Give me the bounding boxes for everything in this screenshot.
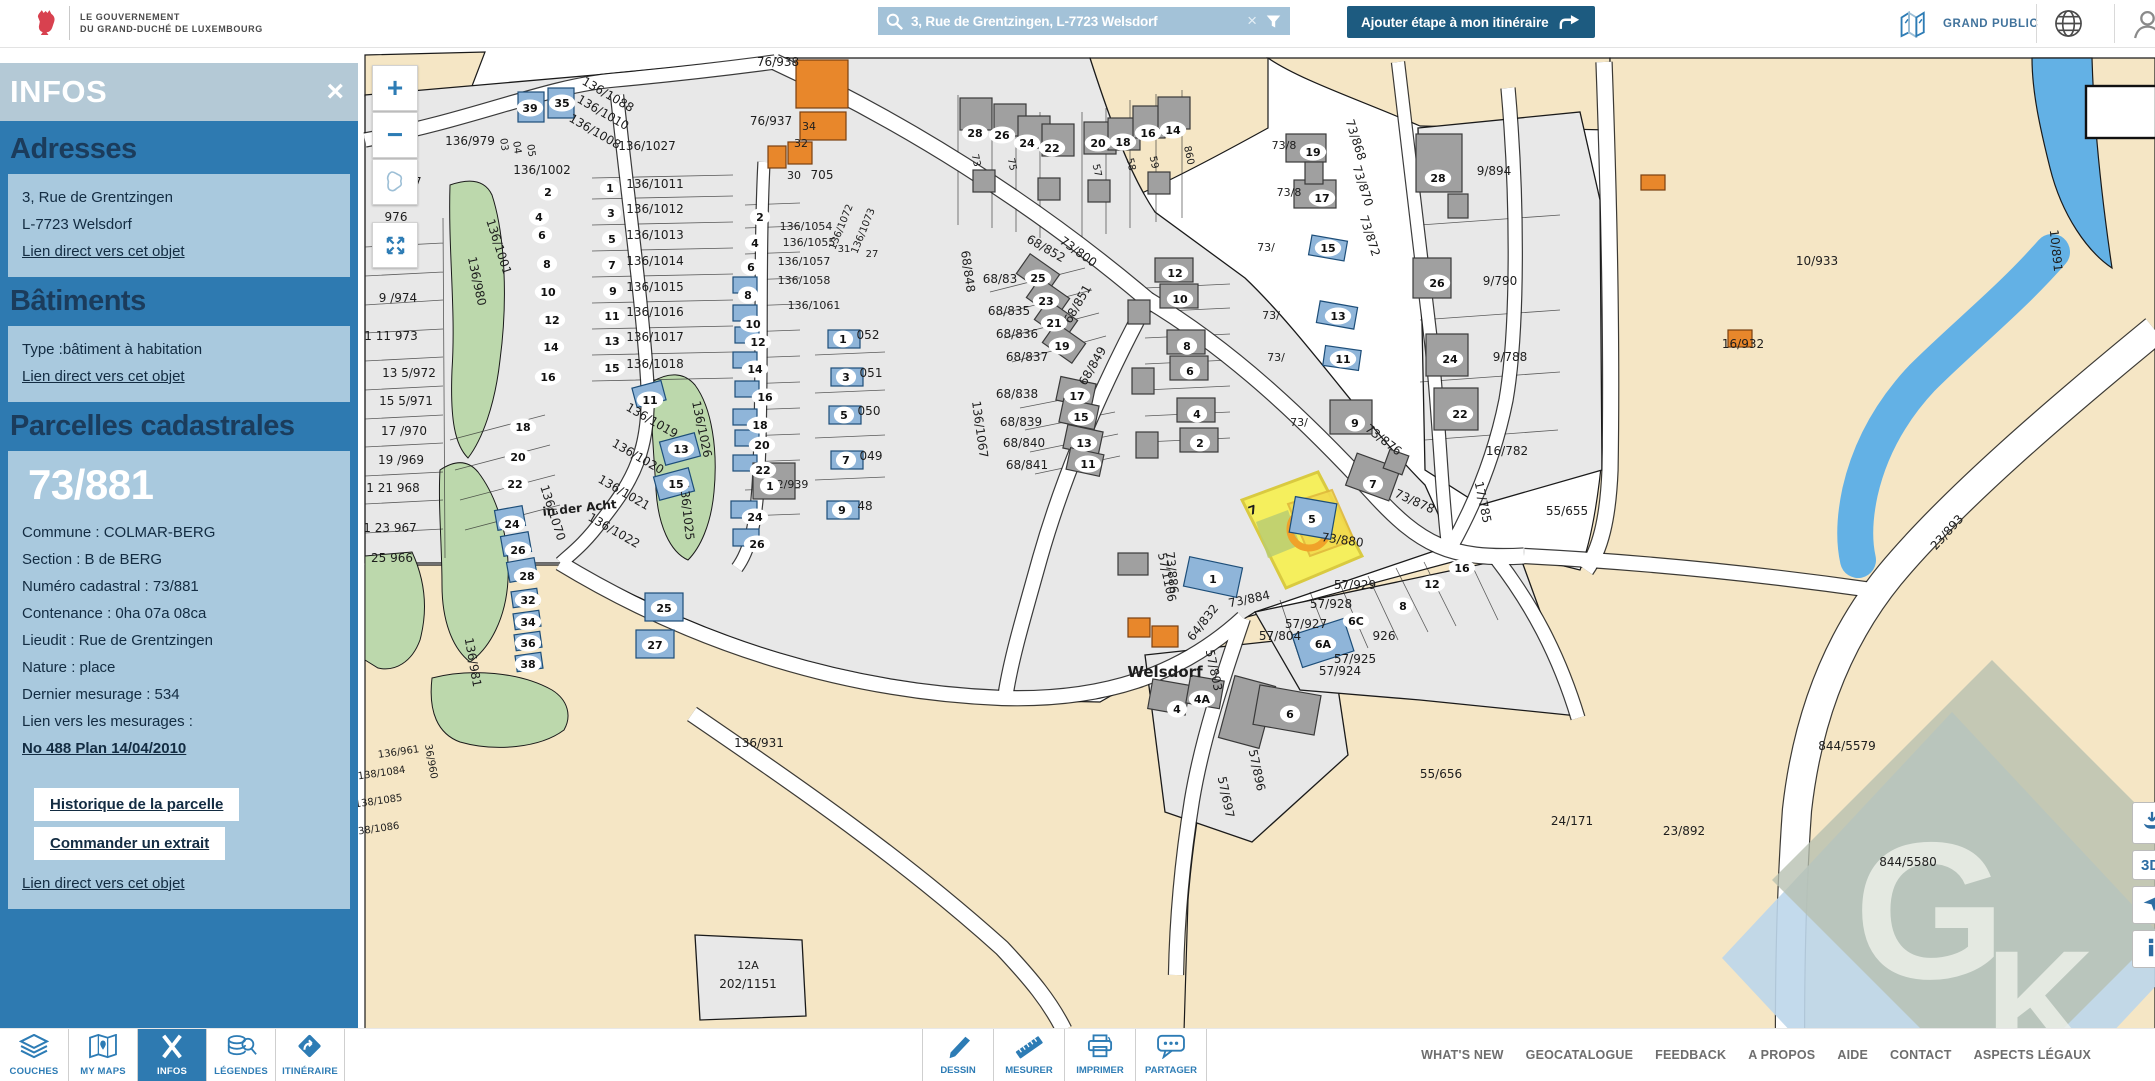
- parcel-label: 73/: [1257, 241, 1275, 254]
- house-number: 18: [510, 419, 536, 436]
- map-building: [1118, 553, 1148, 575]
- house-number: 8: [537, 256, 557, 273]
- house-number: 8: [738, 287, 758, 304]
- parcel-label: 9/894: [1477, 164, 1512, 178]
- parcel-label: 136/1015: [626, 280, 684, 294]
- parcel-label: 16/932: [1722, 337, 1764, 351]
- house-number: 22: [502, 476, 528, 493]
- parcel-label: 68/83: [983, 272, 1018, 286]
- footer-link-what-s-new[interactable]: WHAT'S NEW: [1421, 1048, 1504, 1062]
- government-logo[interactable]: LE GOUVERNEMENT DU GRAND-DUCHÉ DE LUXEMB…: [36, 6, 263, 40]
- tab-itin-raire[interactable]: ITINÉRAIRE: [276, 1029, 345, 1081]
- house-number: 19: [1300, 144, 1326, 161]
- layers-icon: [19, 1034, 49, 1064]
- house-number: 12: [539, 312, 565, 329]
- map-building: [1132, 368, 1154, 394]
- svg-text:14: 14: [543, 341, 559, 354]
- parcel-label: 68/836: [996, 327, 1038, 341]
- house-number: 15: [599, 360, 625, 377]
- language-globe-button[interactable]: [2054, 9, 2083, 43]
- logo-line-1: LE GOUVERNEMENT: [80, 11, 263, 23]
- svg-text:32: 32: [520, 594, 535, 607]
- footer-link-aspects-l-gaux[interactable]: ASPECTS LÉGAUX: [1974, 1048, 2091, 1062]
- house-number: 16: [1449, 560, 1475, 577]
- house-number: 1: [1203, 571, 1223, 588]
- pencil-icon: [943, 1034, 973, 1064]
- audience-label: GRAND PUBLIC: [1943, 18, 2038, 30]
- audience-switch[interactable]: GRAND PUBLIC: [1896, 0, 2038, 47]
- svg-text:9: 9: [609, 285, 617, 298]
- svg-text:11: 11: [604, 310, 619, 323]
- parcel-label: 73/8: [1277, 186, 1302, 199]
- parcel-label: 76/937: [750, 114, 792, 128]
- svg-text:11: 11: [1335, 353, 1350, 366]
- parcel-label: 76/938: [757, 55, 799, 69]
- house-number: 4: [745, 235, 765, 252]
- legend-icon: [226, 1034, 257, 1064]
- house-number: 23: [1033, 293, 1059, 310]
- svg-text:15: 15: [1073, 411, 1088, 424]
- folded-map-icon: [1896, 10, 1933, 38]
- house-number: 22: [1039, 140, 1065, 157]
- house-number: 13: [668, 441, 694, 458]
- house-number: 1: [600, 180, 620, 197]
- person-icon: [2132, 8, 2155, 39]
- tool-partager[interactable]: PARTAGER: [1136, 1029, 1207, 1081]
- svg-text:4: 4: [1193, 408, 1201, 421]
- search-icon: [886, 13, 903, 30]
- svg-text:7: 7: [608, 259, 616, 272]
- house-number: 17: [1064, 388, 1090, 405]
- house-number: 7: [836, 452, 856, 469]
- svg-text:5: 5: [608, 233, 616, 246]
- parcel-label: 049: [860, 449, 883, 463]
- tool-label: DESSIN: [940, 1065, 975, 1076]
- map-building: [973, 170, 995, 192]
- parcel-label: 73/: [1267, 351, 1285, 364]
- house-number: 19: [1049, 338, 1075, 355]
- house-number: 7: [602, 257, 622, 274]
- house-number: 35: [549, 95, 575, 112]
- svg-text:38: 38: [520, 658, 535, 671]
- house-number: 25: [1025, 270, 1051, 287]
- svg-text:9: 9: [838, 504, 846, 517]
- svg-text:8: 8: [744, 289, 752, 302]
- svg-text:7: 7: [842, 454, 850, 467]
- svg-text:24: 24: [1442, 353, 1458, 366]
- infos-panel-body: Adresses 3, Rue de Grentzingen L-7723 We…: [0, 121, 358, 1028]
- map-building: [1148, 172, 1170, 194]
- svg-text:17: 17: [1314, 192, 1329, 205]
- parcel-label: 926: [1373, 629, 1396, 643]
- parcel-label: 57/928: [1310, 597, 1352, 611]
- navigate-icon: [2141, 893, 2155, 918]
- house-number: 24: [1437, 351, 1463, 368]
- tab-my-maps[interactable]: MY MAPS: [69, 1029, 138, 1081]
- section-adresses-heading: Adresses: [10, 133, 350, 166]
- svg-text:16: 16: [1140, 127, 1156, 140]
- house-number: 10: [1167, 291, 1193, 308]
- svg-text:28: 28: [519, 570, 534, 583]
- parcel-label: 57/804: [1259, 629, 1301, 643]
- tab-label: MY MAPS: [80, 1066, 126, 1077]
- parcel-label: 24/171: [1551, 814, 1593, 828]
- parcel-label: 136/1054: [780, 220, 833, 233]
- expand-icon: [384, 234, 407, 257]
- svg-text:12: 12: [1167, 267, 1182, 280]
- close-icon: [157, 1034, 187, 1064]
- house-number: 3: [601, 205, 621, 222]
- parcel-label: 48: [857, 499, 872, 513]
- svg-text:4: 4: [1173, 703, 1181, 716]
- house-number: 16: [752, 389, 778, 406]
- svg-text:10: 10: [1172, 293, 1188, 306]
- house-number: 7: [1363, 476, 1383, 493]
- luxembourg-outline-icon: [383, 170, 407, 194]
- svg-text:13: 13: [673, 443, 688, 456]
- parcel-label: 136/1061: [788, 299, 841, 312]
- house-number: 28: [962, 125, 988, 142]
- parcel-label: 136/1013: [626, 228, 684, 242]
- zoom-in-button[interactable]: +: [372, 65, 418, 111]
- house-number: 27: [642, 637, 668, 654]
- view-3d-button[interactable]: 3D: [2132, 850, 2155, 880]
- svg-text:6C: 6C: [1348, 615, 1364, 628]
- parcel-label: 13 5/972: [382, 366, 436, 380]
- svg-text:26: 26: [749, 538, 765, 551]
- svg-text:22: 22: [755, 464, 770, 477]
- house-number: 36: [515, 635, 541, 652]
- house-number: 26: [505, 542, 531, 559]
- parcel-label: 19 /969: [378, 453, 424, 467]
- search-bar[interactable]: 3, Rue de Grentzingen, L-7723 Welsdorf ×: [878, 7, 1290, 35]
- svg-text:12: 12: [750, 336, 765, 349]
- footer-link-a-propos[interactable]: A PROPOS: [1748, 1048, 1815, 1062]
- footer-link-feedback[interactable]: FEEDBACK: [1655, 1048, 1726, 1062]
- svg-text:14: 14: [1165, 124, 1181, 137]
- watermark-g: G: [1854, 802, 2006, 1020]
- footer-link-contact[interactable]: CONTACT: [1890, 1048, 1952, 1062]
- svg-text:12: 12: [544, 314, 559, 327]
- map-building: [1088, 180, 1110, 202]
- svg-text:7: 7: [1369, 478, 1377, 491]
- house-number: 9: [832, 502, 852, 519]
- house-number: 9: [1345, 415, 1365, 432]
- logo-divider: [69, 6, 70, 40]
- footer-link-geocatalogue[interactable]: GEOCATALOGUE: [1526, 1048, 1634, 1062]
- user-account-button[interactable]: [2132, 8, 2155, 44]
- house-number: 2: [1190, 435, 1210, 452]
- building-direct-link[interactable]: Lien direct vers cet objet: [22, 363, 185, 390]
- house-number: 1: [760, 478, 780, 495]
- svg-text:20: 20: [754, 439, 770, 452]
- svg-text:39: 39: [522, 102, 537, 115]
- building-type-line: Type :bâtiment à habitation: [22, 336, 336, 363]
- tool-mesurer[interactable]: MESURER: [994, 1029, 1065, 1081]
- svg-text:36: 36: [520, 637, 536, 650]
- parcel-label: 705: [811, 168, 834, 182]
- house-number: 11: [1075, 456, 1101, 473]
- svg-text:6: 6: [1186, 365, 1194, 378]
- parcel-label: 12A: [737, 959, 759, 972]
- svg-text:18: 18: [752, 419, 767, 432]
- close-icon[interactable]: ×: [326, 79, 344, 105]
- house-number: 15: [663, 476, 689, 493]
- house-number: 14: [538, 339, 564, 356]
- parcel-detail-line: Numéro cadastral : 73/881: [22, 573, 336, 600]
- house-number: 11: [599, 308, 625, 325]
- parcel-label: 136/1017: [626, 330, 684, 344]
- svg-text:13: 13: [1076, 437, 1091, 450]
- parcel-label: 136/931: [734, 736, 784, 750]
- map-building: [768, 146, 786, 168]
- parcel-label: 68/839: [1000, 415, 1042, 429]
- parcel-label: 25 966: [371, 551, 413, 565]
- parcel-label: 03: [497, 138, 510, 152]
- parcel-label: 136/1011: [626, 177, 684, 191]
- parcel-label: 052: [857, 328, 880, 342]
- svg-text:2: 2: [756, 211, 764, 224]
- order-extract-button[interactable]: Commander un extrait: [34, 827, 225, 860]
- house-number: 13: [1325, 308, 1351, 325]
- tool-imprimer[interactable]: IMPRIMER: [1065, 1029, 1136, 1081]
- svg-text:6: 6: [1286, 708, 1294, 721]
- add-step-label: Ajouter étape à mon itinéraire: [1361, 15, 1549, 30]
- section-parcelles-heading: Parcelles cadastrales: [10, 410, 350, 443]
- house-number: 1: [833, 331, 853, 348]
- svg-text:19: 19: [1054, 340, 1069, 353]
- tool-label: MESURER: [1005, 1065, 1053, 1076]
- house-number: 4: [1167, 701, 1187, 718]
- house-number: 26: [989, 127, 1015, 144]
- add-step-button[interactable]: Ajouter étape à mon itinéraire: [1347, 6, 1595, 38]
- fullscreen-button[interactable]: [372, 222, 418, 268]
- svg-text:15: 15: [668, 478, 683, 491]
- parcel-label: 31: [838, 244, 851, 255]
- svg-text:10: 10: [745, 318, 761, 331]
- parcel-label: 68/841: [1006, 458, 1048, 472]
- house-number: 18: [1110, 134, 1136, 151]
- mymaps-icon: [88, 1034, 118, 1064]
- tab-label: LÉGENDES: [214, 1066, 268, 1077]
- parcel-label: 32: [794, 137, 808, 150]
- house-number: 3: [836, 369, 856, 386]
- parcel-label: 844/5579: [1818, 739, 1876, 753]
- ruler-icon: [1014, 1034, 1044, 1064]
- parcel-label: 9/788: [1493, 350, 1528, 364]
- parcel-detail-line: Lieudit : Rue de Grentzingen: [22, 627, 336, 654]
- parcel-label: 1 11 973: [364, 329, 417, 343]
- svg-text:1: 1: [766, 480, 774, 493]
- svg-text:4: 4: [751, 237, 759, 250]
- parcel-label: 55/655: [1546, 504, 1588, 518]
- map-building: [1038, 178, 1060, 200]
- svg-text:34: 34: [520, 616, 536, 629]
- house-number: 14: [742, 361, 768, 378]
- house-number: 2: [538, 184, 558, 201]
- house-number: 24: [1014, 135, 1040, 152]
- house-number: 12: [1419, 576, 1445, 593]
- parcel-label: 27: [866, 249, 879, 260]
- parcel-label: 73/: [1290, 416, 1308, 429]
- house-number: 11: [1330, 351, 1356, 368]
- svg-text:14: 14: [747, 363, 763, 376]
- house-number: 26: [744, 536, 770, 553]
- house-number: 20: [1085, 135, 1111, 152]
- cadastral-map[interactable]: G K 78779769 /9741 11 97313 5/97215 5/97…: [358, 47, 2155, 1030]
- parcel-label: 136/1018: [626, 357, 684, 371]
- parcel-label: 136/979: [445, 134, 495, 148]
- svg-text:5: 5: [1308, 513, 1316, 526]
- svg-text:13: 13: [1330, 310, 1345, 323]
- svg-text:19: 19: [1305, 146, 1320, 159]
- map-building: [1136, 432, 1158, 458]
- svg-text:1: 1: [606, 182, 614, 195]
- svg-text:5: 5: [840, 409, 848, 422]
- globe-icon: [2054, 9, 2083, 38]
- tab-l-gendes[interactable]: LÉGENDES: [207, 1029, 276, 1081]
- footer-links: WHAT'S NEWGEOCATALOGUEFEEDBACKA PROPOSAI…: [1421, 1029, 2091, 1081]
- parcel-direct-link[interactable]: Lien direct vers cet objet: [22, 870, 185, 897]
- infos-panel-header: INFOS ×: [0, 63, 358, 121]
- toolbar-tabs: COUCHESMY MAPSINFOSLÉGENDESITINÉRAIRE: [0, 1029, 345, 1081]
- svg-text:28: 28: [1430, 172, 1445, 185]
- svg-text:20: 20: [1090, 137, 1106, 150]
- svg-text:1: 1: [1209, 573, 1217, 586]
- house-number: 13: [1071, 435, 1097, 452]
- map-building: [1152, 626, 1178, 647]
- house-number: 38: [515, 656, 541, 673]
- top-header: LE GOUVERNEMENT DU GRAND-DUCHÉ DE LUXEMB…: [0, 0, 2155, 48]
- house-number: 26: [1424, 275, 1450, 292]
- tab-label: ITINÉRAIRE: [282, 1066, 338, 1077]
- share-icon: [1156, 1034, 1186, 1064]
- mesurage-link[interactable]: No 488 Plan 14/04/2010: [22, 735, 186, 762]
- filter-funnel-icon[interactable]: [1265, 13, 1282, 30]
- svg-text:24: 24: [1019, 137, 1035, 150]
- house-number: 8: [1393, 598, 1413, 615]
- parcel-detail-line: Contenance : 0ha 07a 08ca: [22, 600, 336, 627]
- parcel-label: 10/933: [1796, 254, 1838, 268]
- svg-text:6: 6: [747, 261, 755, 274]
- house-number: 12: [1162, 265, 1188, 282]
- house-number: 28: [514, 568, 540, 585]
- parcel-label: 04: [510, 141, 523, 155]
- house-number: 10: [535, 284, 561, 301]
- parcel-label: 051: [860, 366, 883, 380]
- svg-text:17: 17: [1069, 390, 1084, 403]
- parcel-label: 34: [802, 120, 816, 133]
- svg-text:3: 3: [607, 207, 615, 220]
- svg-text:22: 22: [507, 478, 522, 491]
- header-divider: [2036, 4, 2037, 43]
- svg-text:2: 2: [544, 186, 552, 199]
- parcel-label: Welsdorf: [1127, 663, 1203, 681]
- parcel-label: 1 23 967: [363, 521, 416, 535]
- tab-label: COUCHES: [10, 1066, 59, 1077]
- parcel-label: 73/8: [1272, 139, 1297, 152]
- svg-text:21: 21: [1046, 317, 1061, 330]
- house-number: 32: [515, 592, 541, 609]
- tab-label: INFOS: [157, 1066, 187, 1077]
- section-batiments-heading: Bâtiments: [10, 285, 350, 318]
- address-line-1: 3, Rue de Grentzingen: [22, 184, 336, 211]
- svg-text:16: 16: [757, 391, 773, 404]
- house-number: 2: [750, 209, 770, 226]
- parcel-label: 68/838: [996, 387, 1038, 401]
- batiments-card: Type :bâtiment à habitation Lien direct …: [8, 326, 350, 402]
- house-number: 10: [740, 316, 766, 333]
- parcel-label: 23/892: [1663, 824, 1705, 838]
- svg-text:15: 15: [604, 362, 619, 375]
- map-building: [1128, 618, 1150, 637]
- svg-text:1: 1: [839, 333, 847, 346]
- address-direct-link[interactable]: Lien direct vers cet objet: [22, 238, 185, 265]
- parcel-history-button[interactable]: Historique de la parcelle: [34, 788, 239, 821]
- svg-text:9: 9: [1351, 417, 1359, 430]
- svg-text:13: 13: [604, 335, 619, 348]
- parcel-label: 136/1014: [626, 254, 684, 268]
- svg-text:25: 25: [656, 602, 671, 615]
- parcel-label: 136/1002: [513, 163, 571, 177]
- parcel-label: 30: [787, 169, 801, 182]
- parcel-label: 1 21 968: [366, 481, 419, 495]
- download-map-button[interactable]: [2132, 802, 2155, 844]
- search-input[interactable]: 3, Rue de Grentzingen, L-7723 Welsdorf: [911, 14, 1247, 29]
- svg-text:22: 22: [1452, 408, 1467, 421]
- svg-text:3: 3: [842, 371, 850, 384]
- tab-infos[interactable]: INFOS: [138, 1029, 207, 1081]
- svg-text:18: 18: [1115, 136, 1130, 149]
- infos-panel: INFOS × Adresses 3, Rue de Grentzingen L…: [0, 63, 358, 1028]
- info-button[interactable]: [2132, 930, 2155, 968]
- logo-line-2: DU GRAND-DUCHÉ DE LUXEMBOURG: [80, 23, 263, 35]
- parcel-label: 57/924: [1319, 664, 1361, 678]
- house-number: 28: [1425, 170, 1451, 187]
- svg-text:26: 26: [1429, 277, 1445, 290]
- parcel-label: 73/: [1262, 309, 1280, 322]
- svg-text:16: 16: [540, 371, 556, 384]
- toolbar-tools: DESSINMESURERIMPRIMERPARTAGER: [922, 1029, 1207, 1081]
- parcel-label: 136/1016: [626, 305, 684, 319]
- footer-link-aide[interactable]: AIDE: [1837, 1048, 1868, 1062]
- clear-search-icon[interactable]: ×: [1247, 11, 1257, 31]
- parcel-detail-line: Nature : place: [22, 654, 336, 681]
- svg-text:8: 8: [1399, 600, 1407, 613]
- house-number: 16: [535, 369, 561, 386]
- parcel-label: 9 /974: [379, 291, 417, 305]
- house-number: 6: [741, 259, 761, 276]
- svg-text:22: 22: [1044, 142, 1059, 155]
- tool-dessin[interactable]: DESSIN: [923, 1029, 994, 1081]
- parcel-detail-line: Lien vers les mesurages :: [22, 708, 336, 735]
- luxembourg-extent-button[interactable]: [372, 159, 418, 205]
- house-number: 4A: [1189, 691, 1215, 708]
- download-icon: [2141, 810, 2155, 836]
- house-number: 9: [603, 283, 623, 300]
- svg-text:23: 23: [1038, 295, 1053, 308]
- zoom-out-button[interactable]: −: [372, 112, 418, 158]
- svg-text:10: 10: [540, 286, 556, 299]
- navigate-button[interactable]: [2132, 886, 2155, 924]
- lion-icon: [36, 8, 59, 39]
- house-number: 24: [499, 516, 525, 533]
- map-building: [1448, 194, 1468, 218]
- tab-couches[interactable]: COUCHES: [0, 1029, 69, 1081]
- svg-text:4: 4: [535, 211, 543, 224]
- svg-text:20: 20: [510, 451, 526, 464]
- house-number: 25: [651, 600, 677, 617]
